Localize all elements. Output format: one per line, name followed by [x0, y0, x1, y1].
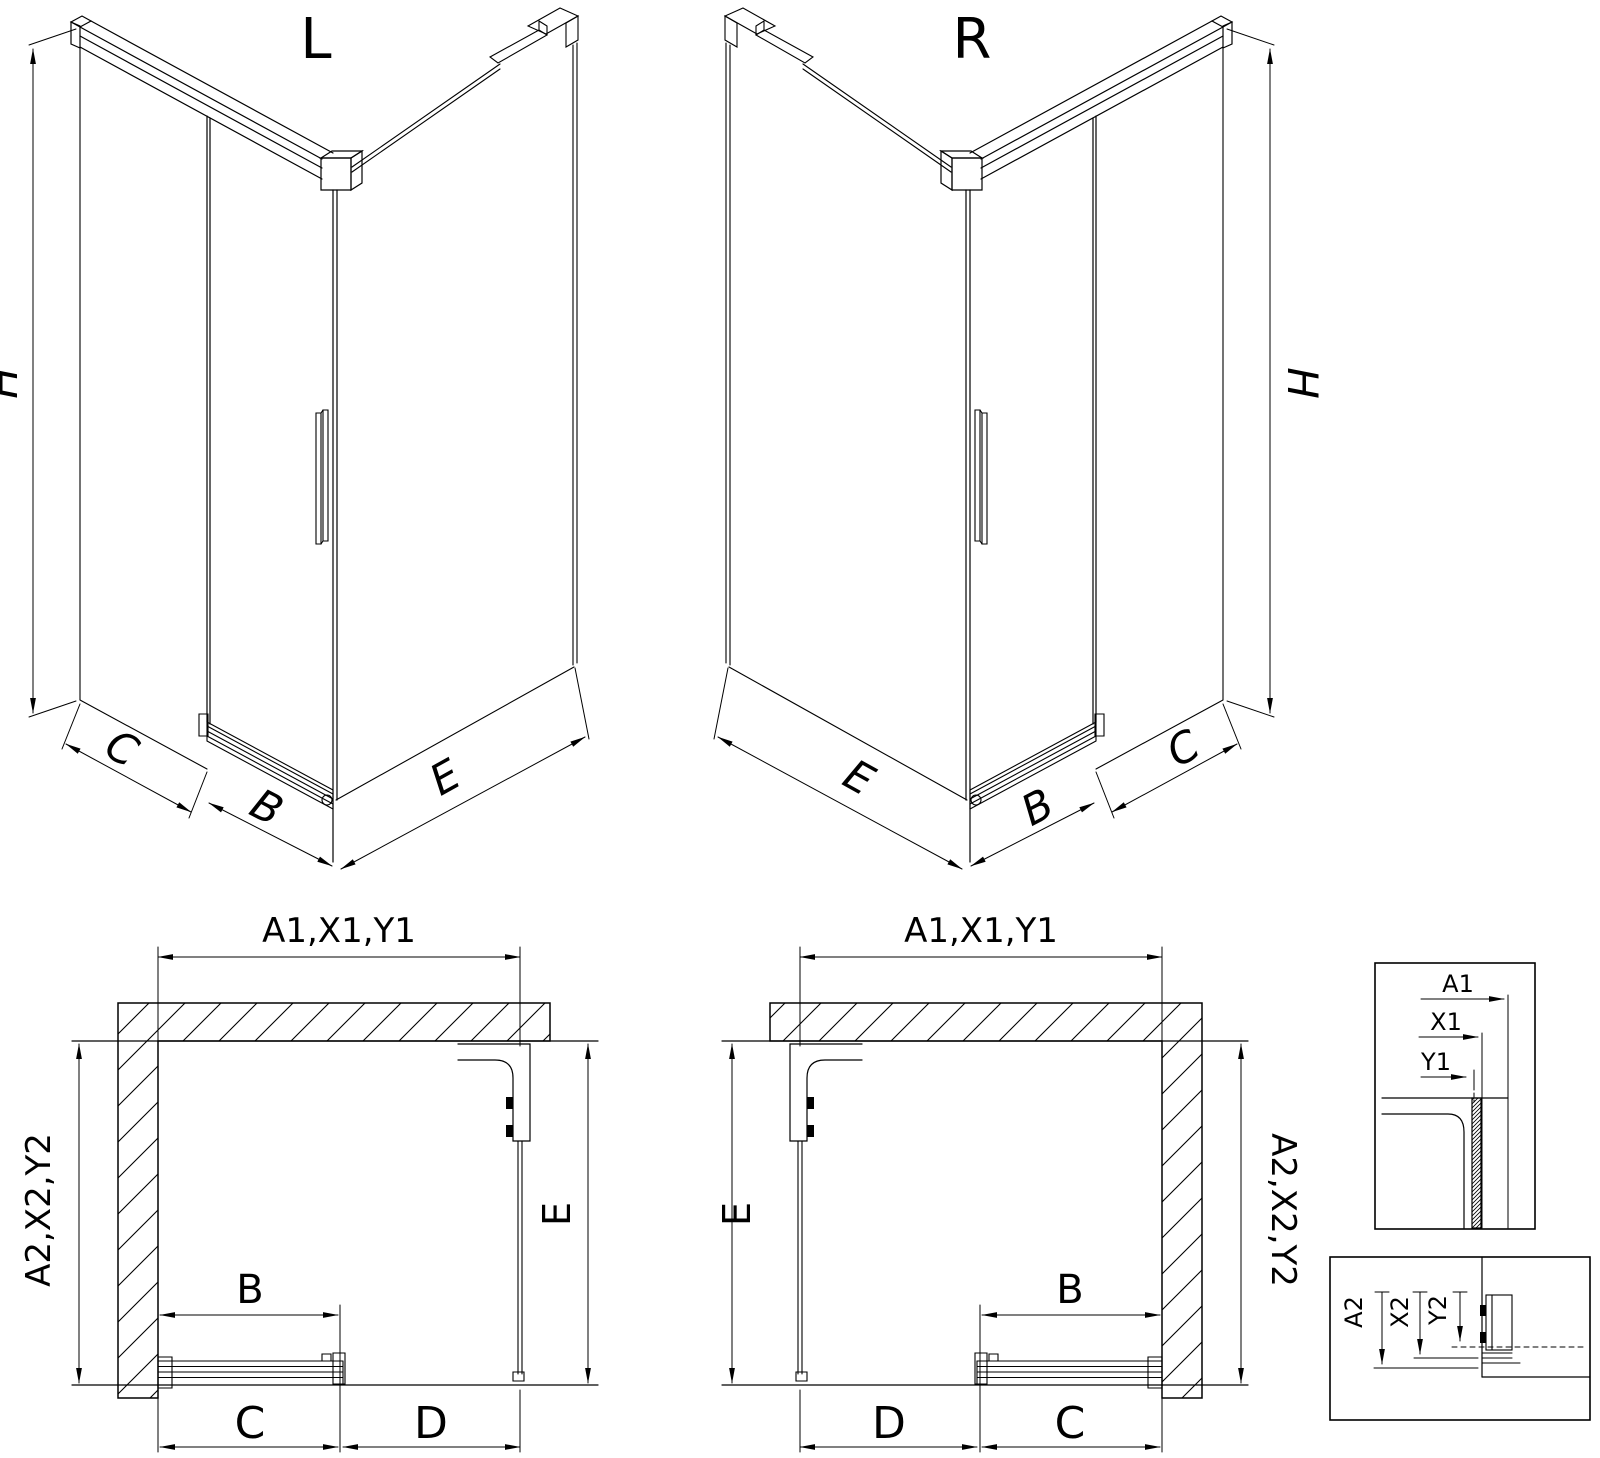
- profile-clamp-tabs-section: [1480, 1305, 1486, 1343]
- iso-left-dim-height: H: [0, 367, 27, 399]
- plan-right-dim-b: B: [1056, 1267, 1083, 1313]
- detail-section-top: [1375, 963, 1535, 1229]
- iso-right-label: R: [953, 7, 992, 72]
- plan-left-dim-d: D: [414, 1398, 448, 1449]
- plan-view-right-graphics: [722, 947, 1248, 1452]
- iso-right-dim-e: E: [836, 749, 883, 805]
- detail-bottom-dim-a2: A2: [1340, 1296, 1368, 1328]
- detail-top-dim-y1: Y1: [1420, 1048, 1451, 1076]
- plan-right-dim-e: E: [715, 1202, 759, 1226]
- plan-right-dim-c: C: [1055, 1398, 1086, 1449]
- detail-section-bottom: [1330, 1257, 1590, 1420]
- detail-bottom-dim-x2: X2: [1386, 1296, 1414, 1328]
- iso-right-dim-b: B: [1013, 779, 1061, 836]
- shower-enclosure-dimension-drawing: L H C B E R H C B E A1,X1,Y1 A2,X2,Y2 E …: [0, 0, 1600, 1458]
- glass-section-strip: [1472, 1098, 1481, 1228]
- plan-right-dim-right: A2,X2,Y2: [1263, 1133, 1303, 1287]
- detail-top-dim-x1: X1: [1430, 1008, 1462, 1036]
- detail-top-dim-a1: A1: [1442, 970, 1474, 998]
- plan-left-dim-top: A1,X1,Y1: [262, 911, 416, 951]
- wall-profile-section: [1382, 1098, 1508, 1228]
- iso-left-dim-c: C: [97, 720, 147, 777]
- plan-left-dim-c: C: [235, 1398, 266, 1449]
- detail-bottom-dim-y2: Y2: [1424, 1295, 1452, 1326]
- technical-drawing-page: L H C B E R H C B E A1,X1,Y1 A2,X2,Y2 E …: [0, 0, 1600, 1458]
- plan-right-dim-d: D: [872, 1398, 906, 1449]
- plan-right-dim-top: A1,X1,Y1: [904, 911, 1058, 951]
- wall-profile-plan-section: [1482, 1295, 1520, 1363]
- plan-left-dim-b: B: [236, 1267, 263, 1313]
- plan-view-left-graphics: [72, 947, 598, 1452]
- iso-left-label: L: [300, 7, 331, 72]
- iso-left-dim-e: E: [421, 749, 468, 805]
- detail-top-frame: [1375, 963, 1535, 1229]
- plan-left-dim-e: E: [535, 1202, 579, 1226]
- plan-left-dim-left: A2,X2,Y2: [19, 1133, 59, 1287]
- iso-right-dim-height: H: [1278, 367, 1327, 399]
- iso-left-dim-b: B: [243, 779, 291, 836]
- iso-right-dim-c: C: [1159, 719, 1209, 776]
